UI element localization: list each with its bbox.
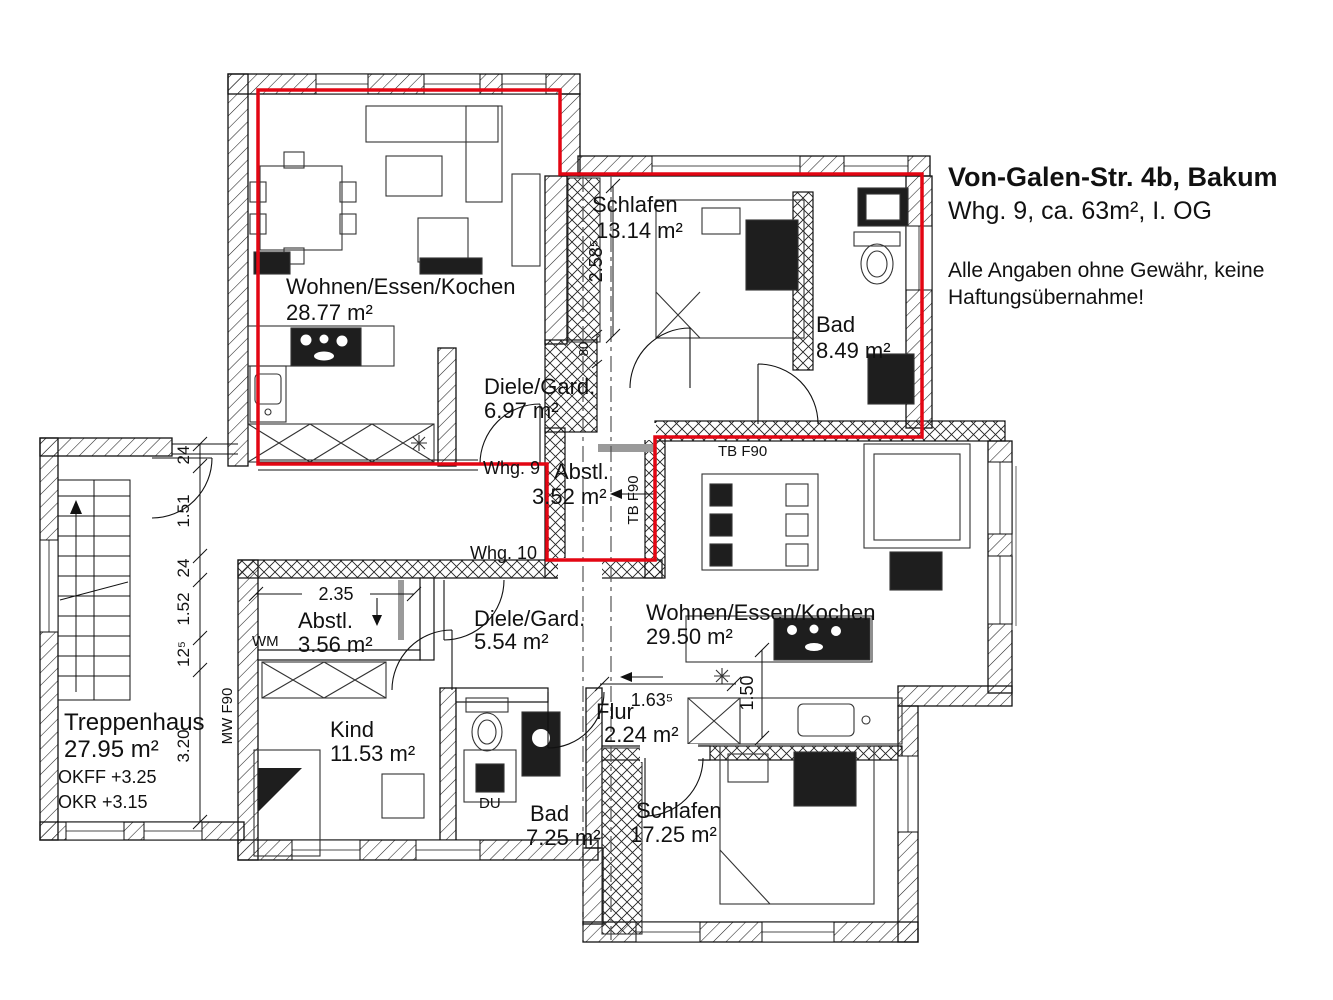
room-diele9-area: 6.97 m² — [484, 398, 559, 423]
room-schlafen10-area: 17.25 m² — [630, 822, 717, 847]
room-diele9-name: Diele/Gard. — [484, 374, 595, 399]
door-leaf-whg10 — [598, 444, 656, 452]
room-living10-area: 29.50 m² — [646, 624, 733, 649]
room-diele10-name: Diele/Gard. — [474, 606, 585, 631]
label-whg10: Whg. 10 — [470, 543, 537, 563]
title-block: Von-Galen-Str. 4b, Bakum Whg. 9, ca. 63m… — [948, 162, 1278, 309]
dim-chain-151: 1.51 — [174, 494, 193, 527]
room-abstell9-name: Abstl. — [554, 459, 609, 484]
label-tb-f90-side: TB F90 — [625, 475, 642, 524]
floorplan-page: 24 1.51 24 1.52 12⁵ 3.20 2.58⁵ 80 2.35 1… — [0, 0, 1333, 1000]
ceiling-lamp-icon — [714, 668, 730, 684]
disclaimer-line1: Alle Angaben ohne Gewähr, keine — [948, 259, 1264, 282]
label-du: DU — [479, 795, 501, 812]
dim-kitchen10-depth: 1.50 — [737, 675, 757, 710]
dim-shaft-width: 80 — [576, 342, 591, 356]
page-title: Von-Galen-Str. 4b, Bakum — [948, 162, 1278, 192]
room-living9-area: 28.77 m² — [286, 300, 373, 325]
sliding-door-abstell10 — [398, 580, 404, 640]
room-schlafen10-name: Schlafen — [636, 798, 722, 823]
door-schlafen9 — [630, 328, 690, 388]
room-flur-name: Flur — [596, 699, 634, 724]
dim-chain-125: 12⁵ — [174, 641, 193, 667]
room-treppenhaus-name: Treppenhaus — [64, 709, 205, 736]
dim-abstell10-width: 2.35 — [318, 584, 353, 604]
room-living10-name: Wohnen/Essen/Kochen — [646, 600, 876, 625]
room-kind-name: Kind — [330, 717, 374, 742]
room-abstell10-area: 3.56 m² — [298, 632, 373, 657]
label-mw-f90: MW F90 — [219, 688, 236, 745]
dim-flur-width: 1.63⁵ — [631, 690, 674, 710]
disclaimer-line2: Haftungsübernahme! — [948, 286, 1144, 309]
door-bad9 — [758, 364, 818, 424]
label-tb-f90-top: TB F90 — [718, 443, 767, 460]
room-abstell9-area: 3.52 m² — [532, 484, 607, 509]
room-schlafen9-name: Schlafen — [592, 192, 678, 217]
dim-schlafen9-depth: 2.58⁵ — [586, 240, 606, 283]
room-diele10-area: 5.54 m² — [474, 629, 549, 654]
dim-chain-24b: 24 — [174, 559, 193, 578]
floorplan-drawing: 24 1.51 24 1.52 12⁵ 3.20 2.58⁵ 80 2.35 1… — [0, 0, 1333, 1000]
room-kind-area: 11.53 m² — [330, 741, 415, 766]
room-bad10-area: 7.25 m² — [526, 825, 601, 850]
room-living9-name: Wohnen/Essen/Kochen — [286, 274, 516, 299]
label-wm: WM — [252, 633, 279, 650]
level-okff: OKFF +3.25 — [58, 767, 157, 787]
room-bad10-name: Bad — [530, 801, 569, 826]
unit-subtitle: Whg. 9, ca. 63m², I. OG — [948, 197, 1212, 225]
dim-chain-152: 1.52 — [174, 592, 193, 625]
level-okr: OKR +3.15 — [58, 792, 148, 812]
dim-chain-24a: 24 — [174, 446, 193, 465]
ceiling-lamp-icon — [411, 435, 427, 451]
room-bad9-area: 8.49 m² — [816, 338, 891, 363]
label-whg9: Whg. 9 — [483, 458, 540, 478]
room-flur-area: 2.24 m² — [604, 722, 679, 747]
room-treppenhaus-area: 27.95 m² — [64, 736, 159, 763]
room-abstell10-name: Abstl. — [298, 608, 353, 633]
room-bad9-name: Bad — [816, 312, 855, 337]
room-schlafen9-area: 13.14 m² — [596, 218, 683, 243]
staircase — [58, 480, 130, 700]
